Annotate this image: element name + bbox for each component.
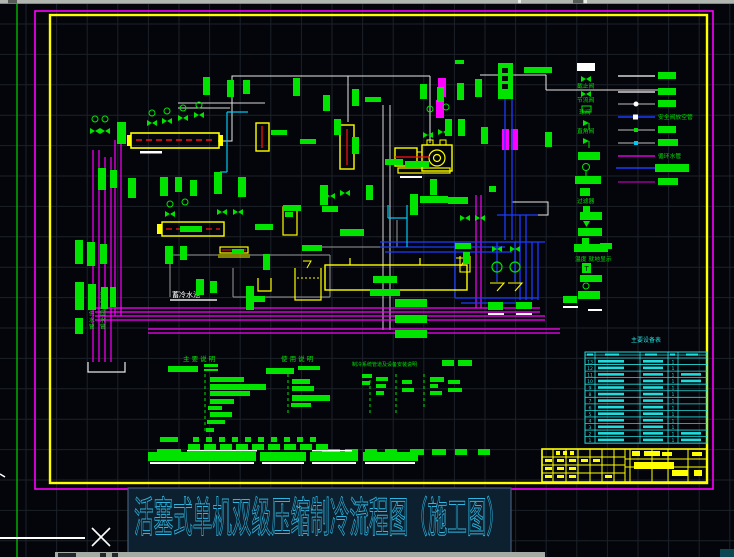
grid bbox=[0, 4, 734, 557]
path-shape bbox=[583, 221, 590, 227]
rect-shape bbox=[204, 369, 218, 371]
equipment-table-cell bbox=[643, 373, 663, 376]
rect-shape bbox=[165, 246, 173, 264]
device-tag bbox=[258, 437, 264, 442]
water-tank bbox=[295, 268, 321, 300]
rect-shape bbox=[292, 379, 310, 384]
legend-label: 直角阀 bbox=[577, 127, 595, 135]
rect-shape bbox=[574, 244, 608, 252]
rect-shape bbox=[633, 115, 638, 120]
drawing-title-text[interactable]: 活塞式单机双级压缩制冷流程图（施工图） bbox=[134, 493, 506, 542]
rect-shape bbox=[516, 302, 532, 309]
rect-shape bbox=[563, 296, 577, 303]
rect-shape bbox=[512, 202, 548, 215]
device-tag bbox=[284, 444, 296, 450]
pump-funnel bbox=[490, 283, 504, 291]
rect-shape bbox=[293, 78, 300, 96]
rect-shape bbox=[557, 467, 564, 470]
rect-shape bbox=[405, 161, 429, 167]
circle-shape bbox=[429, 150, 445, 166]
notes-section: 主 要 说 明使 用 说 明制冷系统管道及设备安装说明 bbox=[168, 354, 472, 432]
rect-shape bbox=[578, 291, 600, 299]
rect-shape bbox=[634, 462, 674, 469]
rect-shape bbox=[320, 185, 328, 205]
rect-shape bbox=[285, 212, 293, 217]
rect-shape bbox=[569, 475, 576, 478]
rect-shape bbox=[489, 186, 496, 192]
rect-shape bbox=[117, 122, 126, 144]
equipment-table-cell bbox=[587, 354, 593, 356]
rect-shape bbox=[658, 139, 678, 146]
equipment-table-cell bbox=[598, 367, 624, 370]
equipment-table-cell bbox=[643, 439, 663, 442]
rect-shape bbox=[658, 126, 676, 133]
equipment-table-cell bbox=[643, 380, 663, 383]
rect-shape bbox=[593, 459, 600, 462]
equipment-table-cell bbox=[598, 426, 624, 429]
equipment-table-cell: 1 bbox=[589, 438, 592, 444]
rect-shape bbox=[481, 127, 488, 144]
rect-shape bbox=[694, 470, 702, 476]
rect-shape bbox=[478, 449, 490, 455]
rect-shape bbox=[545, 467, 552, 470]
circle-shape bbox=[92, 116, 98, 122]
device-tag bbox=[188, 444, 200, 450]
rect-shape bbox=[502, 68, 508, 73]
rect-shape bbox=[644, 451, 660, 456]
equipment-table-cell bbox=[643, 426, 663, 429]
rect-shape bbox=[658, 88, 676, 95]
circle-shape bbox=[434, 155, 441, 162]
rect-shape bbox=[402, 380, 412, 384]
rect-shape bbox=[219, 135, 223, 146]
rect-shape bbox=[658, 178, 678, 185]
bow-shape bbox=[165, 211, 175, 217]
flow-diagram: 蓄冷水池接冷却供水管接冷却回水管 bbox=[75, 60, 660, 372]
device-tag bbox=[252, 444, 264, 450]
rect-shape bbox=[580, 212, 602, 220]
path-shape bbox=[583, 138, 589, 144]
bow-shape bbox=[340, 190, 350, 196]
rect-shape bbox=[352, 137, 359, 154]
rect-shape bbox=[75, 240, 83, 264]
rect-shape bbox=[420, 196, 448, 203]
rect-shape bbox=[582, 238, 589, 244]
rect-shape bbox=[128, 178, 136, 198]
equipment-table-cell bbox=[643, 432, 663, 435]
rect-shape bbox=[662, 452, 672, 456]
equipment-table-cell bbox=[645, 354, 657, 356]
text-shape: T bbox=[583, 265, 589, 273]
rect-shape bbox=[442, 360, 454, 366]
rect-shape bbox=[150, 462, 254, 464]
rect-shape bbox=[140, 151, 162, 154]
rect-shape bbox=[488, 302, 503, 310]
rect-shape bbox=[196, 279, 204, 295]
circle-shape bbox=[634, 102, 639, 107]
rect-shape bbox=[563, 451, 567, 455]
circle-shape bbox=[583, 283, 589, 289]
rect-shape bbox=[672, 470, 688, 476]
rect-shape bbox=[127, 135, 131, 146]
equipment-table-cell bbox=[598, 439, 624, 442]
rect-shape bbox=[578, 228, 602, 236]
rect-shape bbox=[402, 388, 414, 392]
device-tag bbox=[300, 444, 312, 450]
rect-shape bbox=[432, 449, 446, 455]
rect-shape bbox=[260, 452, 306, 461]
poly-shape bbox=[258, 278, 271, 291]
rect-shape bbox=[210, 281, 217, 293]
rect-shape bbox=[352, 89, 359, 106]
rect-shape bbox=[488, 313, 504, 315]
rect-shape bbox=[210, 391, 250, 396]
rect-shape bbox=[545, 459, 552, 462]
rect-shape bbox=[632, 451, 640, 456]
equipment-table-cell bbox=[598, 393, 624, 396]
rect-shape bbox=[373, 276, 397, 283]
rect-shape bbox=[556, 451, 560, 455]
rect-shape bbox=[100, 553, 106, 557]
equipment-table-cell bbox=[598, 419, 624, 422]
notes-title: 使 用 说 明 bbox=[281, 354, 314, 363]
equipment-table-cell bbox=[681, 432, 701, 435]
toolbar-strip[interactable] bbox=[0, 0, 734, 4]
bow-shape bbox=[100, 128, 110, 134]
rect-shape bbox=[583, 206, 590, 213]
rect-shape bbox=[422, 145, 452, 171]
rect-shape bbox=[570, 451, 574, 455]
equipment-table-cell bbox=[670, 354, 675, 356]
circle-shape bbox=[102, 116, 108, 122]
rect-shape bbox=[370, 289, 400, 296]
rect-shape bbox=[524, 67, 552, 73]
rect-shape bbox=[455, 243, 471, 249]
device-tag bbox=[236, 444, 248, 450]
rect-shape bbox=[376, 391, 384, 395]
rect-shape bbox=[448, 380, 460, 384]
rect-shape bbox=[545, 132, 552, 147]
rect-shape bbox=[385, 159, 403, 165]
rect-shape bbox=[634, 128, 638, 132]
rect-shape bbox=[175, 177, 182, 192]
device-tag bbox=[245, 437, 251, 442]
rect-shape bbox=[430, 377, 444, 382]
rect-shape bbox=[362, 374, 372, 378]
rect-shape bbox=[255, 224, 273, 230]
device-tag bbox=[193, 437, 199, 442]
rect-shape bbox=[302, 245, 322, 251]
bow-shape bbox=[217, 209, 227, 215]
vtext-shape: 接冷却回水管 bbox=[100, 290, 106, 331]
rect-shape bbox=[580, 188, 590, 196]
device-tag bbox=[297, 437, 303, 442]
rect-shape bbox=[376, 377, 388, 381]
equipment-table-cell bbox=[598, 406, 624, 409]
device-tag bbox=[206, 437, 212, 442]
rect-shape bbox=[395, 330, 427, 338]
device-tag bbox=[219, 437, 225, 442]
rect-shape bbox=[98, 168, 106, 190]
rect-shape bbox=[410, 194, 418, 215]
rect-shape bbox=[458, 119, 465, 136]
equipment-table-cell: 1 bbox=[672, 438, 675, 444]
device-tag bbox=[316, 444, 328, 450]
rect-shape bbox=[334, 119, 341, 135]
rect-shape bbox=[366, 185, 373, 200]
rect-shape bbox=[362, 381, 370, 385]
rect-shape bbox=[210, 399, 234, 404]
rect-shape bbox=[569, 459, 576, 462]
rect-shape bbox=[157, 224, 162, 234]
vtext-shape: 接冷却供水管 bbox=[89, 290, 95, 331]
rect-shape bbox=[263, 254, 270, 270]
rect-shape bbox=[210, 412, 232, 417]
rect-shape bbox=[266, 368, 294, 374]
rect-shape bbox=[243, 80, 250, 94]
equipment-table-cell bbox=[643, 367, 663, 370]
rect-shape bbox=[577, 63, 595, 71]
rect-shape bbox=[100, 244, 107, 264]
rect-shape bbox=[365, 97, 381, 102]
rect-shape bbox=[395, 299, 427, 307]
equipment-table-cell bbox=[643, 412, 663, 415]
rect-shape bbox=[440, 140, 446, 145]
equipment-table-cell bbox=[643, 360, 663, 363]
rect-shape bbox=[210, 377, 244, 382]
equipment-table: 主要设备表131121111101918171615141312111 bbox=[585, 336, 707, 444]
rect-shape bbox=[180, 246, 187, 260]
rect-shape bbox=[55, 552, 545, 557]
device-tag bbox=[268, 444, 280, 450]
drawing-svg[interactable]: 蓄冷水池接冷却供水管接冷却回水管 T截止阀节流阀球阀直角阀过滤器温度 就地显示安… bbox=[0, 0, 734, 557]
equipment-table-cell bbox=[598, 360, 624, 363]
rect-shape bbox=[206, 428, 214, 432]
rect-shape bbox=[557, 475, 564, 478]
rect-shape bbox=[455, 60, 464, 64]
rect-shape bbox=[312, 450, 352, 452]
rect-shape bbox=[283, 207, 297, 235]
bow-shape bbox=[194, 112, 204, 118]
rect-shape bbox=[581, 459, 588, 462]
rect-shape bbox=[204, 364, 218, 367]
rect-shape bbox=[557, 459, 564, 462]
rect-shape bbox=[400, 176, 422, 178]
rect-shape bbox=[160, 437, 178, 442]
rect-shape bbox=[475, 79, 482, 97]
rect-shape bbox=[75, 282, 84, 310]
rect-shape bbox=[291, 403, 311, 407]
equipment-table-cell bbox=[598, 432, 624, 435]
legend-label: 温度 就地显示 bbox=[575, 255, 612, 263]
rect-shape bbox=[310, 452, 358, 461]
bow-shape bbox=[581, 76, 591, 82]
rect-shape bbox=[448, 197, 468, 204]
notes-title: 制冷系统管道及设备安装说明 bbox=[352, 361, 417, 368]
rect-shape bbox=[262, 462, 304, 464]
rect-shape bbox=[376, 384, 386, 388]
rect-shape bbox=[430, 391, 442, 395]
rect-shape bbox=[569, 467, 576, 470]
line-shape bbox=[0, 474, 5, 477]
rect-shape bbox=[207, 420, 225, 424]
equipment-table-cell bbox=[598, 412, 624, 415]
rect-shape bbox=[292, 386, 314, 391]
rect-shape bbox=[148, 452, 256, 461]
rect-shape bbox=[463, 252, 470, 264]
rect-shape bbox=[578, 152, 600, 160]
rect-shape bbox=[238, 177, 246, 197]
rect-shape bbox=[634, 141, 638, 145]
rect-shape bbox=[430, 384, 438, 388]
rect-shape bbox=[563, 306, 578, 308]
rect-shape bbox=[502, 76, 508, 81]
equipment-table-title: 主要设备表 bbox=[631, 336, 661, 344]
rect-shape bbox=[588, 309, 602, 311]
notes-title: 主 要 说 明 bbox=[183, 354, 216, 363]
title-text-overlay[interactable]: 活塞式单机双级压缩制冷流程图（施工图） bbox=[128, 488, 511, 553]
circle-shape bbox=[164, 108, 170, 114]
poly-shape bbox=[88, 362, 125, 372]
bow-shape bbox=[233, 209, 243, 215]
rect-shape bbox=[365, 462, 415, 464]
rect-shape bbox=[110, 287, 116, 307]
legend: T截止阀节流阀球阀直角阀过滤器温度 就地显示安全阀放空管循环水管 bbox=[574, 63, 693, 299]
rect-shape bbox=[445, 119, 452, 136]
rect-shape bbox=[168, 366, 198, 372]
rect-shape bbox=[292, 395, 330, 401]
rect-shape bbox=[203, 77, 210, 95]
rect-shape bbox=[322, 206, 338, 212]
rect-shape bbox=[246, 286, 254, 310]
equipment-table-cell bbox=[643, 399, 663, 402]
rect-shape bbox=[208, 406, 222, 410]
rect-shape bbox=[180, 226, 202, 232]
rect-shape bbox=[692, 452, 702, 456]
rect-shape bbox=[271, 130, 287, 135]
rect-shape bbox=[545, 475, 552, 478]
circle-shape bbox=[583, 164, 590, 171]
rect-shape bbox=[283, 205, 301, 211]
equipment-table-cell bbox=[598, 373, 624, 376]
rect-shape bbox=[605, 475, 612, 478]
bow-shape bbox=[178, 115, 188, 121]
rect-shape bbox=[455, 449, 467, 455]
rect-shape bbox=[436, 100, 444, 118]
bow-shape bbox=[162, 118, 172, 124]
rect-shape bbox=[75, 318, 83, 334]
equipment-table-cell bbox=[643, 386, 663, 389]
rect-shape bbox=[458, 360, 472, 366]
rect-shape bbox=[720, 549, 734, 557]
title-block bbox=[542, 449, 707, 482]
legend-label: 球阀 bbox=[579, 108, 591, 116]
rect-shape bbox=[437, 87, 444, 102]
bow-shape bbox=[147, 120, 157, 126]
equipment-table-cell bbox=[598, 399, 624, 402]
rect-shape bbox=[300, 139, 316, 144]
rect-shape bbox=[340, 229, 364, 236]
equipment-table-cell bbox=[643, 406, 663, 409]
rect-shape bbox=[58, 553, 76, 557]
equipment-table-cell bbox=[681, 380, 701, 383]
rect-shape bbox=[87, 242, 95, 266]
device-tag bbox=[310, 437, 316, 442]
rect-shape bbox=[0, 3, 734, 4]
bow-shape bbox=[460, 215, 470, 221]
equipment-table-cell bbox=[686, 354, 698, 356]
rect-shape bbox=[395, 315, 427, 323]
rect-shape bbox=[323, 95, 330, 111]
device-tag bbox=[232, 437, 238, 442]
rect-shape bbox=[210, 384, 266, 390]
legend-label: 安全阀放空管 bbox=[658, 113, 693, 121]
rect-shape bbox=[655, 164, 689, 172]
rect-shape bbox=[502, 84, 508, 89]
rect-shape bbox=[160, 177, 168, 196]
rect-shape bbox=[430, 179, 437, 195]
equipment-table-cell bbox=[643, 393, 663, 396]
path-shape bbox=[583, 120, 589, 126]
bow-shape bbox=[423, 132, 433, 138]
rect-shape bbox=[227, 80, 234, 97]
circle-shape bbox=[182, 199, 188, 205]
equipment-table-cell bbox=[598, 386, 624, 389]
bow-shape bbox=[90, 128, 100, 134]
device-tag bbox=[204, 444, 216, 450]
cad-canvas[interactable]: 蓄冷水池接冷却供水管接冷却回水管 T截止阀节流阀球阀直角阀过滤器温度 就地显示安… bbox=[0, 0, 734, 557]
rect-shape bbox=[253, 296, 265, 302]
equipment-table-cell bbox=[643, 419, 663, 422]
equipment-table-cell bbox=[605, 354, 619, 356]
rect-shape bbox=[110, 170, 117, 188]
rect-shape bbox=[298, 366, 320, 370]
legend-label: 循环水管 bbox=[658, 152, 681, 160]
legend-label: 截止阀 bbox=[577, 82, 595, 90]
device-tag bbox=[220, 444, 232, 450]
rect-shape bbox=[214, 172, 222, 194]
rect-shape bbox=[448, 388, 462, 392]
rect-shape bbox=[575, 176, 601, 184]
equipment-table-cell bbox=[681, 373, 701, 376]
rect-shape bbox=[187, 450, 257, 452]
bow-shape bbox=[581, 91, 591, 97]
device-tag bbox=[284, 437, 290, 442]
rect-shape bbox=[516, 313, 532, 315]
legend-label: 节流阀 bbox=[577, 96, 595, 104]
rect-shape bbox=[658, 100, 676, 107]
legend-label: 过滤器 bbox=[577, 197, 595, 205]
rect-shape bbox=[232, 249, 244, 254]
rect-shape bbox=[457, 83, 464, 100]
rect-shape bbox=[312, 462, 356, 464]
rect-shape bbox=[363, 452, 418, 461]
text-shape: 蓄冷水池 bbox=[172, 290, 200, 299]
rect-shape bbox=[190, 180, 197, 196]
rect-shape bbox=[112, 553, 118, 557]
rect-shape bbox=[420, 84, 427, 99]
rect-shape bbox=[580, 275, 602, 282]
device-tag bbox=[271, 437, 277, 442]
equipment-table-cell bbox=[598, 380, 624, 383]
rect-shape bbox=[658, 72, 676, 79]
equipment-table-cell bbox=[681, 439, 701, 442]
device-tag-row bbox=[148, 437, 490, 464]
